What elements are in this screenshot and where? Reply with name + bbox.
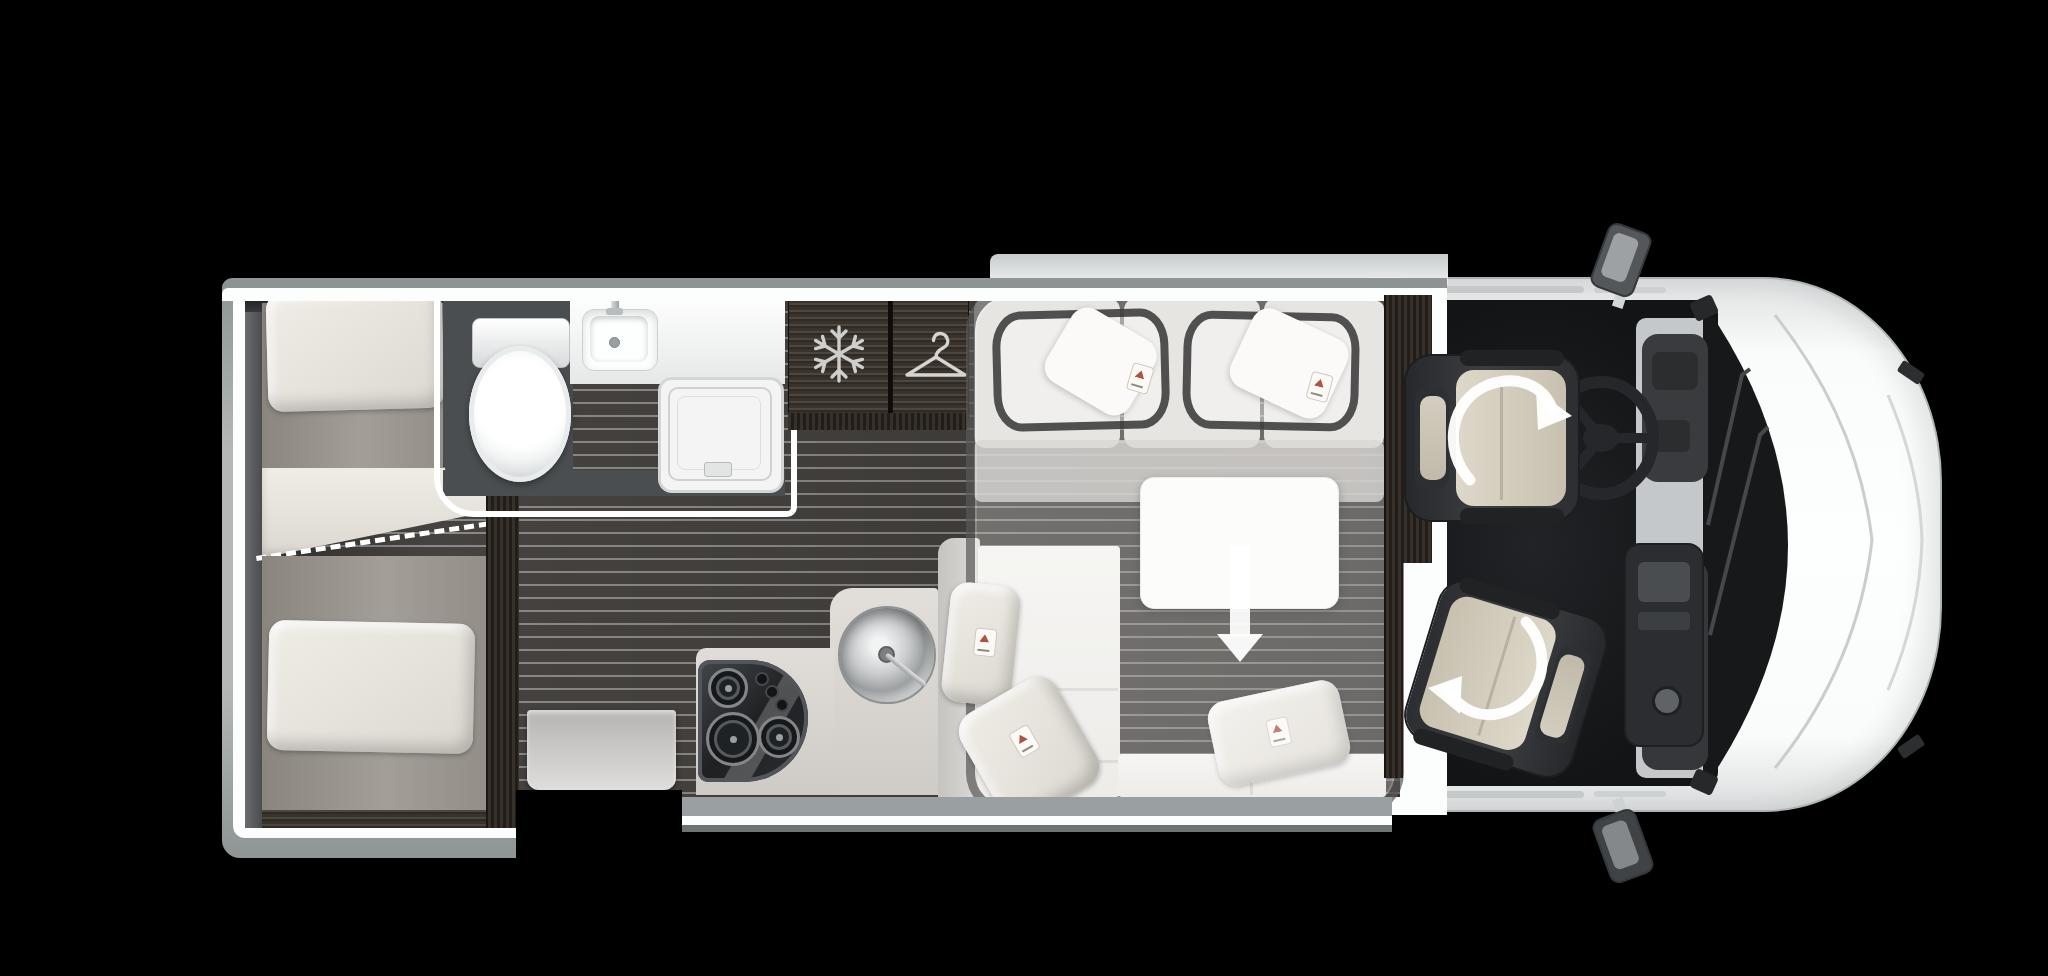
- bed-base-front: [262, 810, 486, 828]
- drop-down-bed-pillow-left: [991, 308, 1170, 433]
- cushion-logo: [1008, 724, 1041, 759]
- entry-step: [527, 710, 676, 790]
- hob-knob-3: [775, 698, 789, 712]
- console-vents: [1638, 612, 1690, 630]
- cabinet-divider: [888, 295, 892, 417]
- seat-armrest: [1460, 508, 1564, 524]
- door-opening: [516, 790, 682, 860]
- bed-top-pillow: [265, 290, 444, 413]
- cab-divider-lower: [1384, 563, 1403, 778]
- passenger-swivel-arrow-icon: [1414, 596, 1564, 736]
- washbasin-drain: [609, 337, 620, 348]
- wall-bottom-black-cab: [1392, 815, 1450, 861]
- door-sill-top: [1434, 286, 1584, 293]
- motorhome-floorplan: [0, 0, 2048, 976]
- cabinet-plinth: [788, 413, 967, 430]
- wall-top-white: [222, 288, 1447, 301]
- wall-bottom-black-mid: [680, 832, 1392, 860]
- mirror-glass: [1600, 819, 1640, 871]
- seat-armrest: [1460, 350, 1564, 366]
- hob-burner-small-right: [758, 716, 800, 758]
- bedroom-side-wall: [245, 300, 262, 828]
- mirror-glass: [1600, 231, 1640, 283]
- wing-mirror-bottom: [1590, 806, 1656, 886]
- bathroom-faucet-spout: [606, 308, 623, 315]
- wall-bottom-edge-mid: [680, 825, 1392, 832]
- hob-burner-large: [706, 712, 760, 766]
- console-screen: [1638, 562, 1690, 602]
- bedside-wood-cabinet: [486, 495, 519, 828]
- door-sill-bottom: [1434, 791, 1584, 798]
- down-arrow-icon: [1217, 634, 1263, 662]
- cushion-logo: [973, 627, 998, 657]
- windshield: [1680, 295, 1900, 795]
- hob-knob-1: [755, 672, 769, 686]
- wall-bottom-white-mid: [680, 816, 1392, 825]
- toilet-bowl: [469, 346, 571, 482]
- hob-burner-small-top: [708, 668, 748, 708]
- wall-bottom-gray-mid: [680, 797, 1392, 816]
- wall-top-gray: [222, 280, 1447, 288]
- hob-knob-2: [765, 685, 779, 699]
- drop-down-bed-pillow-right: [1182, 310, 1360, 432]
- shower-tray-inner2: [677, 396, 761, 470]
- inner-pillow: [1038, 301, 1163, 422]
- driver-swivel-arrow-icon: [1440, 368, 1590, 508]
- down-arrow-shaft: [1230, 546, 1250, 636]
- shower-drain: [704, 462, 732, 477]
- snowflake-icon: [808, 322, 870, 386]
- hanger-icon: [902, 330, 970, 380]
- door-sill-bottom-2: [1594, 791, 1666, 797]
- bed-bottom-pillow: [267, 620, 476, 754]
- inner-pillow: [1224, 302, 1355, 424]
- gear-knob: [1652, 686, 1682, 716]
